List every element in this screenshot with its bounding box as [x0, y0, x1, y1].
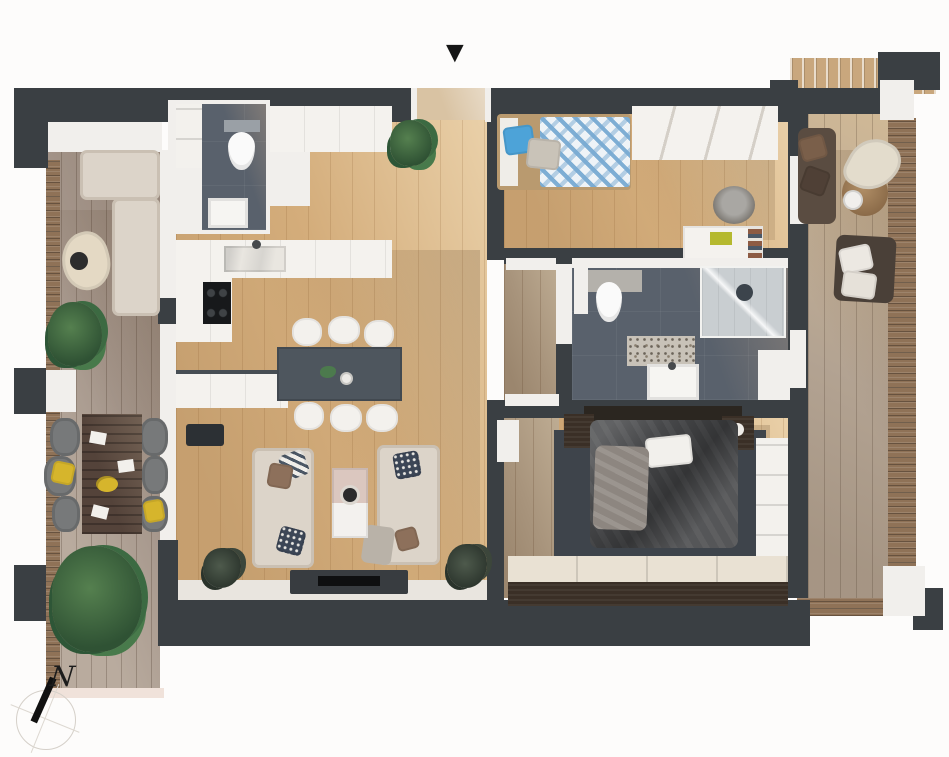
kids-pillow-gray: [526, 137, 562, 170]
dining-table: [277, 347, 402, 401]
terrace-plant-bottom: [52, 546, 142, 652]
bathroom-shelf-left: [574, 268, 588, 314]
sofa-pillow-brown: [266, 462, 294, 490]
planter-bottom-right: [883, 566, 925, 616]
balcony-railing: [888, 118, 916, 570]
dining-chair: [294, 402, 324, 430]
entrance-door: [415, 88, 487, 120]
terrace-cushion-yellow: [50, 460, 76, 486]
bathroom-window: [790, 330, 806, 388]
vanity-faucet: [668, 362, 676, 370]
terrace-napkin: [117, 459, 135, 473]
dining-centerpiece-vase: [340, 372, 353, 385]
bed-blanket-gray: [593, 445, 650, 531]
terrace-table-decor: [70, 252, 88, 270]
sill-top-left: [48, 122, 162, 152]
kids-desk-chair: [713, 186, 755, 224]
terrace-cushion-yellow: [142, 498, 166, 523]
entrance-jamb-left: [411, 88, 417, 122]
terrace-sofa-top: [80, 150, 160, 200]
bathroom-cabinet-right: [758, 350, 790, 400]
balcony-pillow-white: [840, 270, 877, 300]
kitchen-bench: [186, 424, 224, 446]
bedroom-wardrobe-doors: [508, 556, 788, 582]
bedroom-wardrobe-base: [508, 582, 788, 606]
window-mullion-bottom: [158, 540, 178, 602]
planter-top-right: [880, 80, 914, 120]
bathroom-shower: [700, 266, 786, 338]
coffee-table: [332, 468, 368, 538]
floorplan-canvas: ▼ N: [0, 0, 949, 757]
hall-cabinet: [270, 152, 310, 206]
kitchen-faucet: [252, 240, 261, 249]
wall-pillar-left-mid: [14, 368, 46, 414]
dining-chair: [328, 316, 360, 344]
terrace-chair: [140, 418, 168, 456]
entrance-jamb-right: [485, 88, 491, 122]
dining-chair: [292, 318, 322, 346]
corridor-floor: [504, 260, 556, 400]
wall-bottom: [158, 600, 810, 646]
compass: N: [6, 664, 96, 754]
terrace-plant-top: [48, 302, 102, 366]
dining-chair: [364, 320, 394, 348]
wc-cabinet: [176, 168, 202, 230]
shower-head: [736, 284, 753, 301]
terrace-lemon-bowl: [96, 476, 118, 492]
bathroom-door: [556, 264, 572, 344]
wall-pillar-left-bottom: [14, 565, 46, 621]
bedroom-door: [505, 394, 559, 406]
bathroom-mat: [627, 336, 695, 366]
kitchen-cooktop: [203, 282, 231, 324]
kids-desk-pad: [710, 232, 732, 245]
bed-pillow-white: [645, 434, 694, 469]
terrace-chair: [142, 456, 168, 494]
kitchen-peninsula: [176, 370, 288, 408]
wc-toilet-cistern: [224, 120, 260, 132]
terrace-napkin: [89, 431, 107, 446]
dining-chair: [366, 404, 398, 432]
bedroom-cabinet-left: [497, 420, 519, 462]
terrace-sofa-side: [112, 198, 160, 316]
entrance-arrow-icon: ▼: [440, 38, 470, 68]
bedroom-open-shelf: [756, 438, 788, 564]
wc-shelf: [176, 104, 202, 168]
hall-wardrobe: [270, 106, 392, 152]
balcony-bottom-slats: [797, 598, 885, 616]
planter-left-mid: [46, 370, 76, 412]
terrace-chair: [50, 418, 80, 456]
wall-corner-top-left: [14, 122, 48, 168]
hall-plant: [390, 120, 432, 166]
terrace-chair: [52, 496, 80, 532]
tv-screen: [318, 576, 380, 586]
wc-washbasin: [208, 198, 248, 228]
kids-desk-books: [748, 228, 762, 258]
balcony-side-table: [843, 190, 863, 210]
sofa-pillow-diamond: [392, 450, 422, 480]
kids-room-door: [506, 258, 556, 270]
north-label: N: [48, 660, 76, 693]
kitchen-sink: [224, 246, 286, 272]
window-mullion-mid: [158, 298, 178, 324]
dining-chair: [330, 404, 362, 432]
coffee-table-vase: [343, 488, 357, 502]
kids-wardrobe: [632, 106, 778, 160]
